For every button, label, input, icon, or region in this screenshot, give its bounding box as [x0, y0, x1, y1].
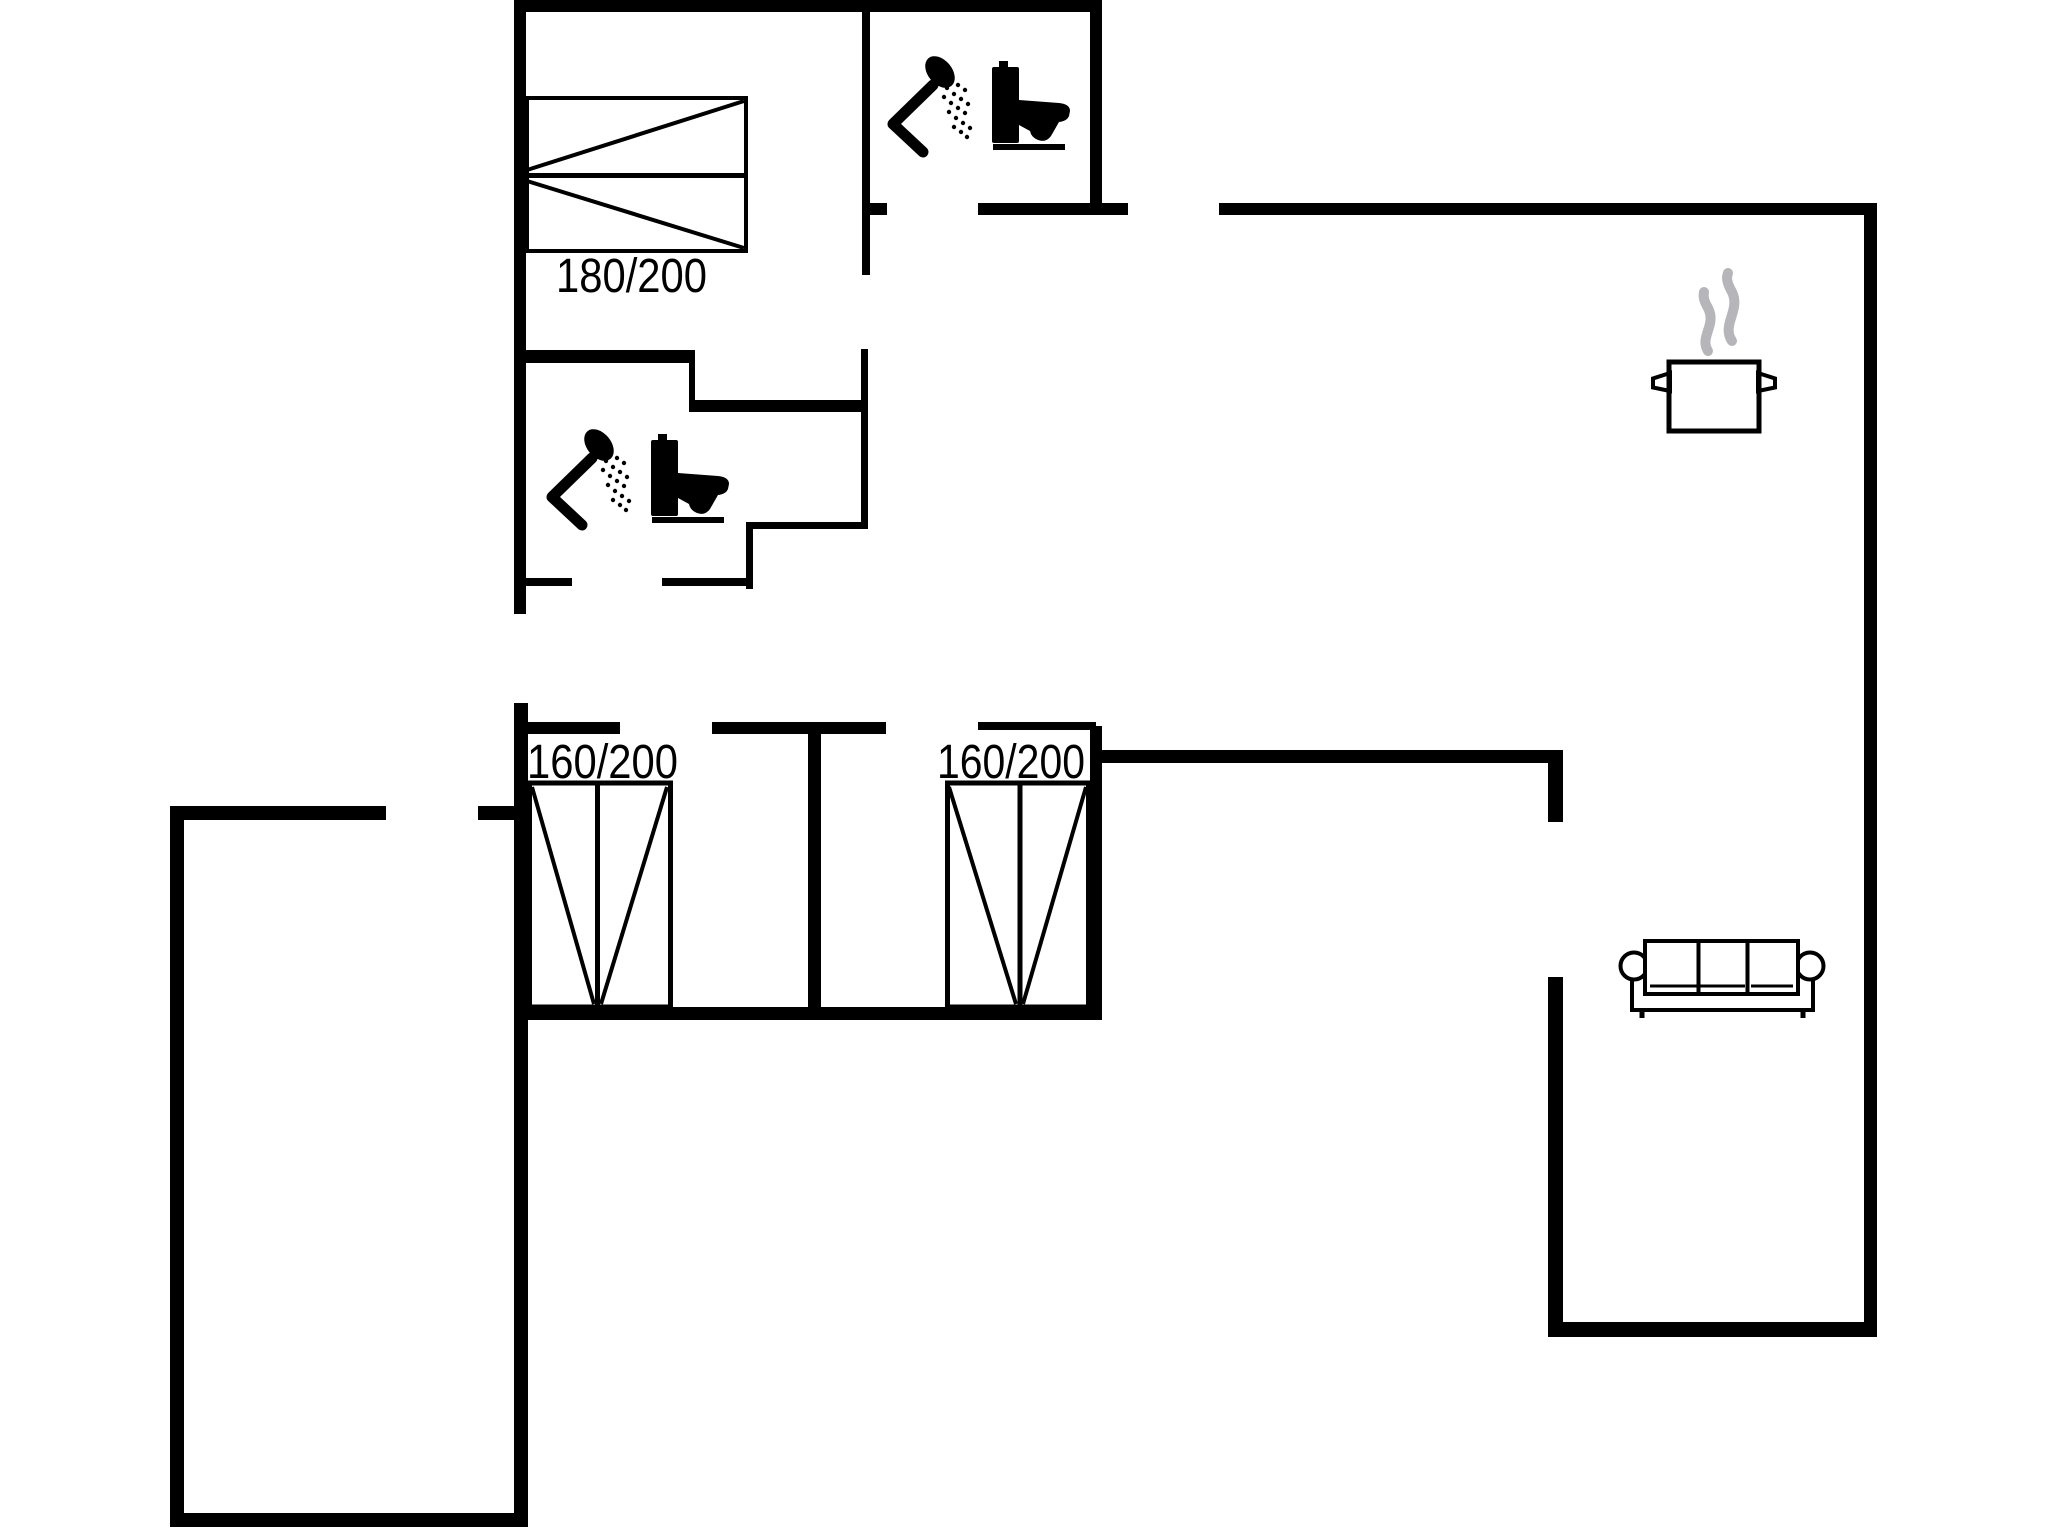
svg-text:160/200: 160/200: [527, 736, 678, 789]
svg-text:160/200: 160/200: [937, 736, 1085, 789]
svg-text:180/200: 180/200: [556, 250, 707, 303]
